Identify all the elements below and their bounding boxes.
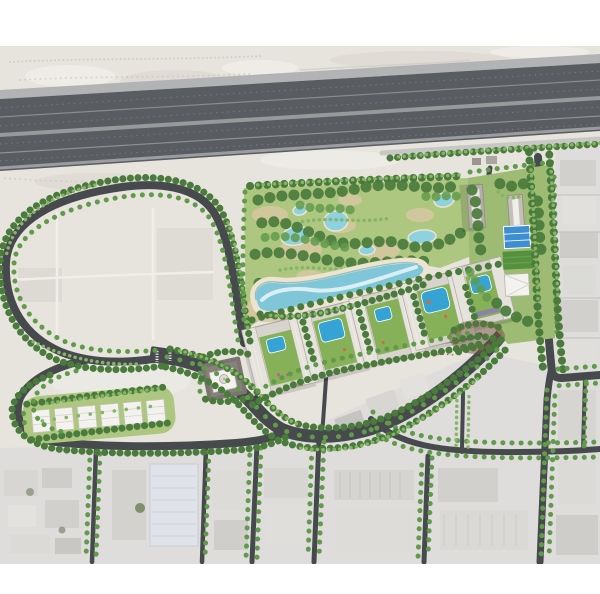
site-plan-image [0,0,600,594]
clubhouse [504,273,529,296]
site-plan-canvas [0,0,600,594]
lawn-field [503,250,534,270]
warehouse [112,464,198,546]
sports-court [503,225,530,248]
